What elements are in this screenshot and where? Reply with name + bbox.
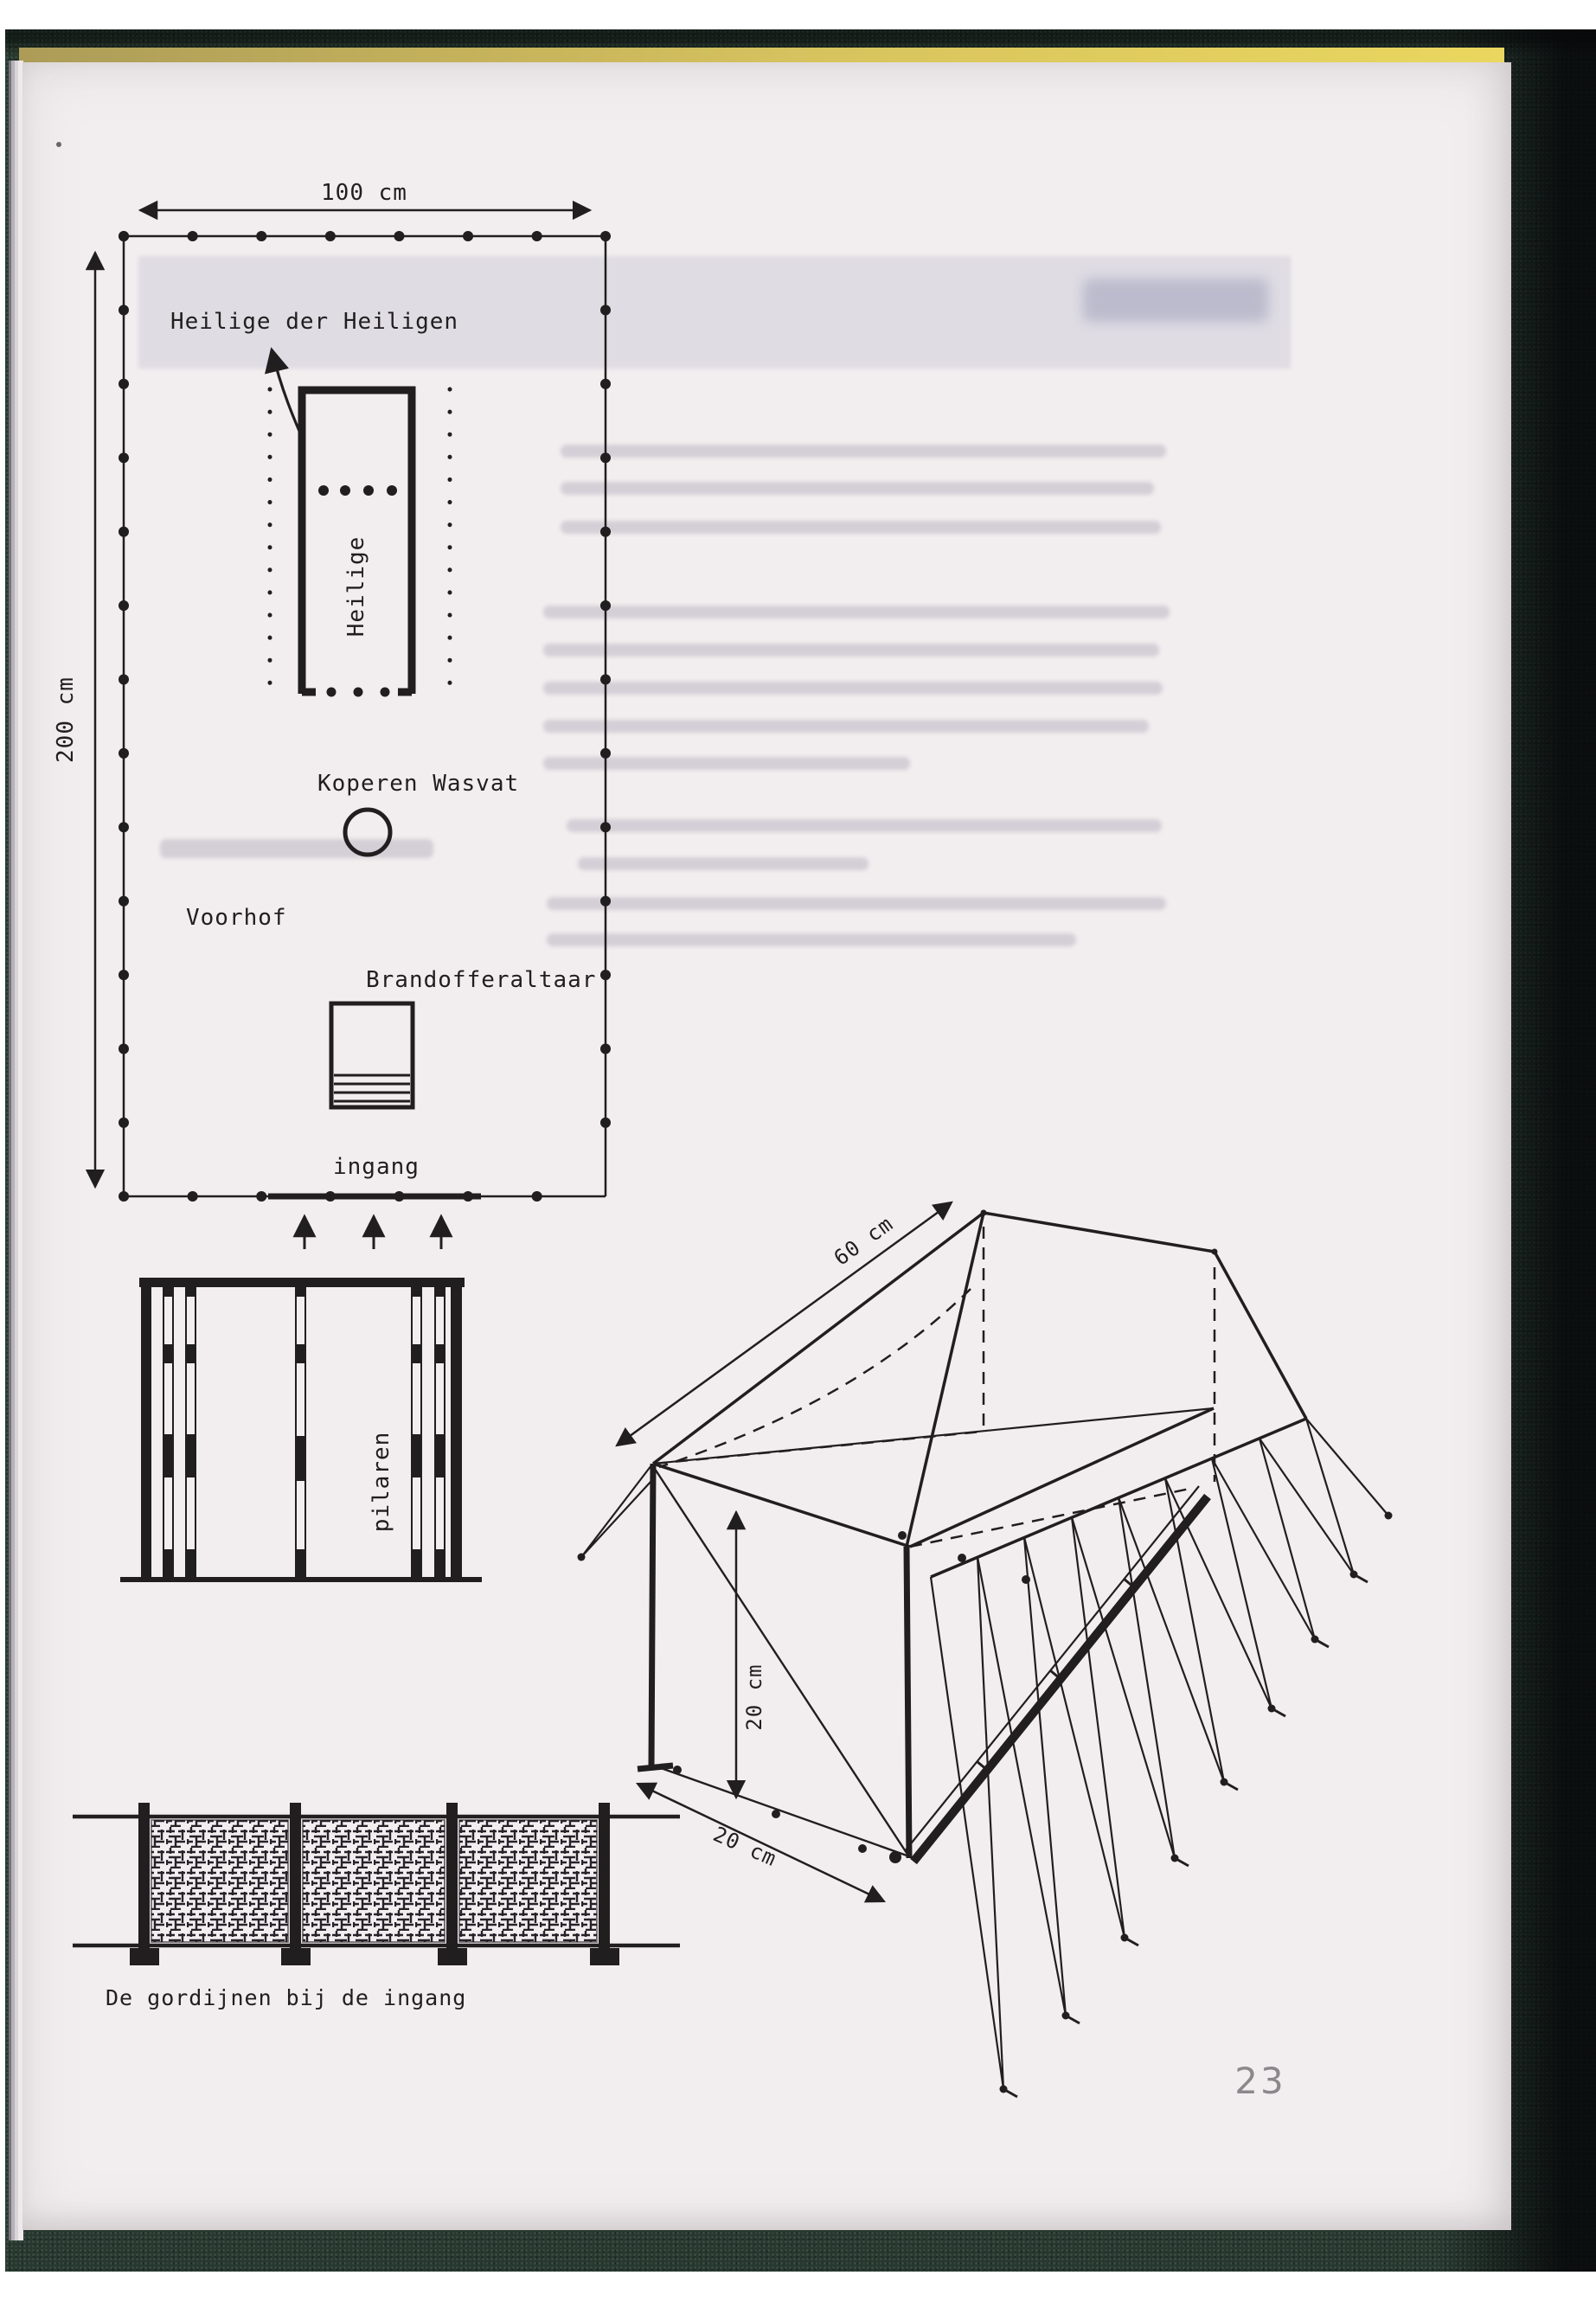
altar-grate-lines [334, 1075, 410, 1101]
entrance-label: ingang [333, 1154, 420, 1180]
segmented-boards [163, 1280, 445, 1579]
far-eave-line [653, 1408, 1214, 1464]
diagram-layer: 100 cm 200 cm Heilige der Heiligen Heili… [0, 0, 1596, 2301]
tent-frame [653, 1213, 1306, 1577]
perimeter-pillar-dots [124, 236, 606, 1196]
front-face-diagonal [653, 1466, 908, 1856]
plan-height-label: 200 cm [53, 676, 79, 763]
speck [56, 142, 61, 147]
tent-length-arrow [617, 1202, 952, 1445]
thick-pillar-left [141, 1278, 151, 1580]
curtain-panels [151, 1820, 597, 1942]
altar-label: Brandofferaltaar [366, 967, 596, 993]
courtyard-perimeter [124, 236, 606, 1196]
hidden-edges [655, 1227, 1215, 1547]
tent-depth-label: 20 cm [709, 1822, 780, 1871]
scanned-book-page: 100 cm 200 cm Heilige der Heiligen Heili… [0, 0, 1596, 2301]
pillars-label: pilaren [369, 1432, 394, 1533]
entrance-arrows [304, 1216, 441, 1249]
holy-place-label: Heilige [343, 536, 369, 638]
sanctuary-door-pillar-dots [327, 688, 390, 697]
left-stake [578, 1554, 586, 1561]
court-label: Voorhof [186, 905, 287, 931]
laver-label: Koperen Wasvat [317, 771, 519, 797]
tabernacle-3d-view: 60 cm 20 cm 20 cm [578, 1202, 1393, 2097]
tent-height-label: 20 cm [742, 1663, 766, 1730]
boards-elevation-diagram: pilaren [120, 1278, 482, 1582]
tabernacle-courtyard-plan: 100 cm 200 cm Heilige der Heiligen Heili… [53, 142, 606, 1249]
curtains-caption: De gordijnen bij de ingang [106, 1985, 466, 2010]
entrance-curtains-diagram: De gordijnen bij de ingang [73, 1803, 680, 2010]
tent-poles [638, 1464, 909, 1858]
base-rail-inner-line [905, 1486, 1199, 1851]
veil-pillar-dots [318, 485, 397, 496]
front-ground-line [651, 1765, 909, 1856]
ground-dots [673, 1210, 1218, 1864]
plan-width-label: 100 cm [321, 180, 407, 206]
thick-pillar-right [451, 1278, 462, 1580]
left-guy-rope [581, 1465, 651, 1557]
laver-circle [345, 810, 390, 855]
tent-length-label: 60 cm [830, 1211, 898, 1270]
holy-of-holies-label: Heilige der Heiligen [170, 309, 458, 335]
page-number: 23 [1234, 2060, 1285, 2102]
tent-stakes [1000, 1512, 1393, 2098]
